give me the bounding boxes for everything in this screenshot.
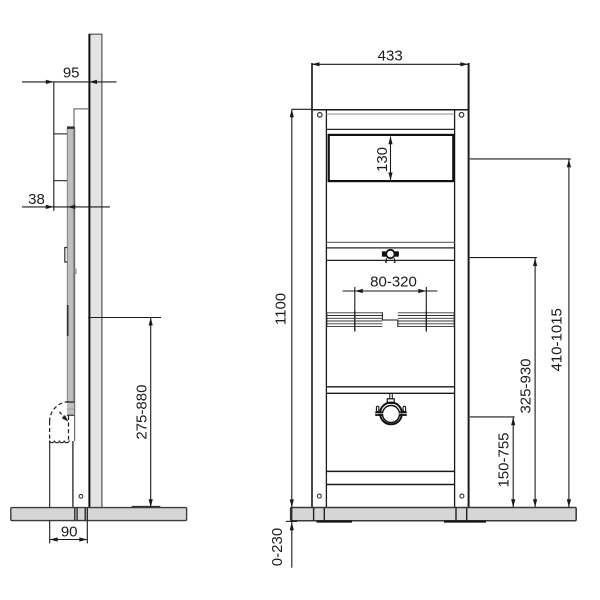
- svg-text:410-1015: 410-1015: [548, 308, 565, 371]
- svg-text:80-320: 80-320: [370, 274, 417, 291]
- svg-text:0-230: 0-230: [269, 528, 286, 566]
- svg-text:433: 433: [378, 48, 403, 65]
- svg-text:325-930: 325-930: [517, 358, 534, 413]
- svg-text:130: 130: [374, 147, 391, 172]
- svg-text:1100: 1100: [272, 293, 289, 325]
- svg-text:275-880: 275-880: [133, 385, 150, 440]
- svg-text:38: 38: [28, 191, 45, 208]
- svg-text:90: 90: [61, 524, 78, 541]
- svg-text:95: 95: [63, 65, 80, 82]
- svg-text:150-755: 150-755: [496, 432, 513, 487]
